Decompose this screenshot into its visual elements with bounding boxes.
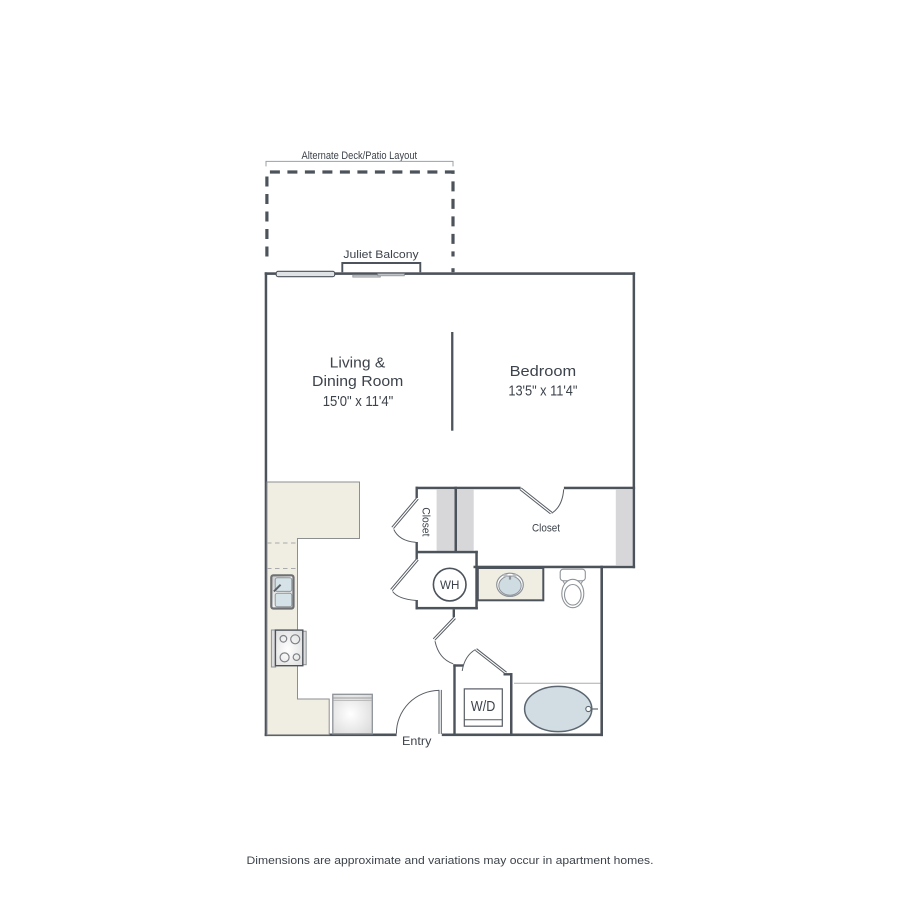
svg-text:Entry: Entry xyxy=(402,736,432,748)
svg-text:Alternate Deck/Patio Layout: Alternate Deck/Patio Layout xyxy=(302,150,418,162)
svg-text:Closet: Closet xyxy=(532,523,560,535)
svg-text:Bedroom: Bedroom xyxy=(510,363,577,380)
svg-text:Dining Room: Dining Room xyxy=(312,373,403,390)
svg-text:W/D: W/D xyxy=(471,698,496,715)
svg-text:Juliet Balcony: Juliet Balcony xyxy=(343,249,419,261)
svg-text:Closet: Closet xyxy=(420,507,432,536)
svg-text:15'0" x 11'4": 15'0" x 11'4" xyxy=(323,393,394,410)
svg-text:WH: WH xyxy=(440,578,459,592)
svg-text:Living &: Living & xyxy=(330,355,386,372)
svg-text:13'5" x 11'4": 13'5" x 11'4" xyxy=(508,382,577,399)
svg-text:Dimensions are approximate and: Dimensions are approximate and variation… xyxy=(247,855,654,867)
